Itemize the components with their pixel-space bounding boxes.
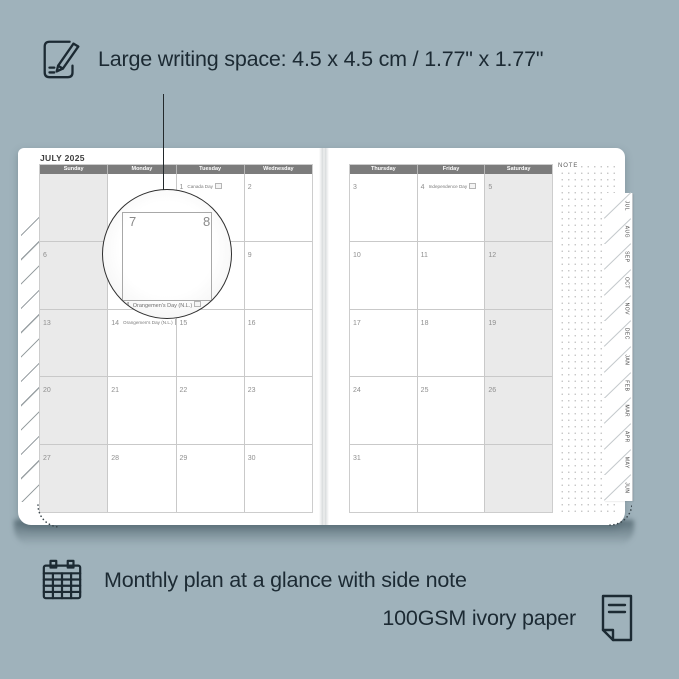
day-number: 23 bbox=[248, 387, 256, 394]
holiday-label: Canada Day bbox=[187, 184, 213, 189]
month-tab-dec: DEC bbox=[604, 321, 633, 347]
day-header: Friday bbox=[418, 165, 486, 174]
calendar-cell bbox=[40, 174, 108, 241]
left-edge-tab-hatching bbox=[21, 212, 40, 502]
month-tab-oct: OCT bbox=[604, 270, 633, 296]
magnified-day-8: 8 bbox=[203, 214, 210, 229]
magnifier-circle: 7 8 4Orangemen's Day (N.L.) bbox=[102, 189, 232, 319]
calendar-cell: 19 bbox=[485, 310, 552, 377]
day-number: 21 bbox=[111, 387, 119, 394]
planner-product-image: Large writing space: 4.5 x 4.5 cm / 1.77… bbox=[0, 0, 679, 679]
page-gutter bbox=[319, 148, 329, 525]
month-title: JULY 2025 bbox=[40, 153, 85, 163]
day-number: 6 bbox=[43, 252, 47, 259]
calendar-week-row: 27282930 bbox=[40, 445, 312, 512]
calendar-cell: 29 bbox=[177, 445, 245, 512]
flag-icon bbox=[194, 301, 201, 307]
calendar-cell: 11 bbox=[418, 242, 486, 309]
planner-page: JULY 2025 SundayMondayTuesdayWednesday1C… bbox=[18, 148, 625, 525]
planner-spread: JULY 2025 SundayMondayTuesdayWednesday1C… bbox=[18, 148, 632, 526]
month-tab-label: JAN bbox=[614, 353, 640, 366]
calendar-cell: 13 bbox=[40, 310, 108, 377]
calendar-cell: 24 bbox=[350, 377, 418, 444]
month-tab-nov: NOV bbox=[604, 296, 633, 322]
day-number: 11 bbox=[421, 252, 428, 259]
calendar-cell: 25 bbox=[418, 377, 486, 444]
month-tab-label: APR bbox=[614, 430, 640, 443]
month-tab-label: MAY bbox=[614, 456, 640, 469]
top-callout: Large writing space: 4.5 x 4.5 cm / 1.77… bbox=[38, 36, 543, 82]
day-number: 15 bbox=[180, 320, 188, 327]
month-tab-label: AUG bbox=[614, 225, 640, 238]
calendar-cell: 3 bbox=[350, 174, 418, 241]
holiday-label: Independence Day bbox=[429, 184, 468, 189]
calendar-cell: 4Independence Day bbox=[418, 174, 486, 241]
flag-icon bbox=[469, 183, 476, 189]
magnified-holiday-row: 4Orangemen's Day (N.L.) bbox=[125, 300, 201, 310]
calendar-right: ThursdayFridaySaturday34Independence Day… bbox=[349, 164, 553, 513]
month-tab-label: DEC bbox=[614, 328, 640, 341]
calendar-icon bbox=[40, 558, 84, 602]
calendar-cell: 30 bbox=[245, 445, 312, 512]
day-number: 20 bbox=[43, 387, 51, 394]
day-number: 24 bbox=[353, 387, 361, 394]
day-number: 28 bbox=[111, 455, 119, 462]
calendar-cell: 5 bbox=[485, 174, 552, 241]
day-header: Sunday bbox=[40, 165, 108, 174]
month-tab-apr: APR bbox=[604, 424, 633, 450]
day-number: 5 bbox=[488, 184, 492, 191]
calendar-cell: 14Orangemen's Day (N.L.) bbox=[108, 310, 176, 377]
day-number: 31 bbox=[353, 455, 361, 462]
day-number: 2 bbox=[248, 184, 252, 191]
note-label: NOTE bbox=[558, 163, 581, 169]
paper-icon bbox=[594, 592, 640, 644]
bottom-callout-text-2: 100GSM ivory paper bbox=[382, 606, 576, 631]
month-tab-feb: FEB bbox=[604, 373, 633, 399]
calendar-cell: 12 bbox=[485, 242, 552, 309]
day-number: 25 bbox=[421, 387, 429, 394]
day-number: 18 bbox=[421, 320, 429, 327]
bottom-callout-2: 100GSM ivory paper bbox=[382, 592, 640, 644]
month-tab-label: JUL bbox=[614, 199, 640, 212]
month-tab-sep: SEP bbox=[604, 244, 633, 270]
day-number: 9 bbox=[248, 252, 252, 259]
day-number: 10 bbox=[353, 252, 361, 259]
month-tab-aug: AUG bbox=[604, 219, 633, 245]
calendar-cell: 15 bbox=[177, 310, 245, 377]
day-number: 29 bbox=[180, 455, 188, 462]
callout-connector-line bbox=[163, 94, 164, 190]
calendar-cell bbox=[418, 445, 486, 512]
top-callout-text: Large writing space: 4.5 x 4.5 cm / 1.77… bbox=[98, 47, 543, 72]
day-header: Thursday bbox=[350, 165, 418, 174]
day-number: 30 bbox=[248, 455, 256, 462]
calendar-cell: 18 bbox=[418, 310, 486, 377]
calendar-week-row: 1314Orangemen's Day (N.L.)1516 bbox=[40, 310, 312, 378]
day-number: 17 bbox=[353, 320, 361, 327]
calendar-cell: 26 bbox=[485, 377, 552, 444]
day-number: 12 bbox=[488, 252, 496, 259]
month-tab-label: JUN bbox=[614, 482, 640, 495]
calendar-cell: 28 bbox=[108, 445, 176, 512]
day-header: Saturday bbox=[485, 165, 552, 174]
month-tab-label: SEP bbox=[614, 251, 640, 264]
day-number: 3 bbox=[353, 184, 357, 191]
month-tab-mar: MAR bbox=[604, 398, 633, 424]
calendar-week-row: 20212223 bbox=[40, 377, 312, 445]
month-tab-label: NOV bbox=[614, 302, 640, 315]
calendar-cell: 20 bbox=[40, 377, 108, 444]
day-header: Monday bbox=[108, 165, 176, 174]
pencil-note-icon bbox=[38, 36, 84, 82]
month-tab-label: MAR bbox=[614, 405, 640, 418]
holiday-label: Orangemen's Day (N.L.) bbox=[123, 320, 173, 325]
calendar-cell: 17 bbox=[350, 310, 418, 377]
calendar-week-row: 31 bbox=[350, 445, 552, 512]
month-tab-may: MAY bbox=[604, 450, 633, 476]
calendar-cell: 2 bbox=[245, 174, 312, 241]
day-number: 26 bbox=[488, 387, 496, 394]
month-tab-jan: JAN bbox=[604, 347, 633, 373]
day-number: 22 bbox=[180, 387, 188, 394]
day-header: Tuesday bbox=[177, 165, 245, 174]
day-number: 13 bbox=[43, 320, 51, 327]
magnified-day-14: 4 bbox=[125, 300, 130, 310]
calendar-cell: 16 bbox=[245, 310, 312, 377]
calendar-cell: 6 bbox=[40, 242, 108, 309]
calendar-cell: 9 bbox=[245, 242, 312, 309]
calendar-cell: 27 bbox=[40, 445, 108, 512]
magnified-day-7: 7 bbox=[129, 214, 136, 229]
month-tab-label: OCT bbox=[614, 276, 640, 289]
calendar-cell: 21 bbox=[108, 377, 176, 444]
magnified-holiday-text: Orangemen's Day (N.L.) bbox=[133, 303, 192, 309]
calendar-week-row: 171819 bbox=[350, 310, 552, 378]
calendar-cell bbox=[485, 445, 552, 512]
flag-icon bbox=[215, 183, 222, 189]
month-tab-label: FEB bbox=[614, 379, 640, 392]
day-number: 19 bbox=[488, 320, 496, 327]
day-number: 14 bbox=[111, 320, 119, 327]
calendar-cell: 23 bbox=[245, 377, 312, 444]
month-tab-jun: JUN bbox=[604, 475, 633, 501]
calendar-cell: 31 bbox=[350, 445, 418, 512]
bottom-callout-text-1: Monthly plan at a glance with side note bbox=[104, 568, 467, 593]
month-tab-jul: JUL bbox=[604, 193, 633, 219]
calendar-week-row: 34Independence Day5 bbox=[350, 174, 552, 242]
calendar-week-row: 101112 bbox=[350, 242, 552, 310]
calendar-cell: 10 bbox=[350, 242, 418, 309]
calendar-week-row: 242526 bbox=[350, 377, 552, 445]
day-header: Wednesday bbox=[245, 165, 312, 174]
month-tab-strip: JULAUGSEPOCTNOVDECJANFEBMARAPRMAYJUN bbox=[604, 193, 632, 501]
day-number: 16 bbox=[248, 320, 256, 327]
day-number: 4 bbox=[421, 184, 425, 191]
day-number: 27 bbox=[43, 455, 51, 462]
calendar-cell: 22 bbox=[177, 377, 245, 444]
